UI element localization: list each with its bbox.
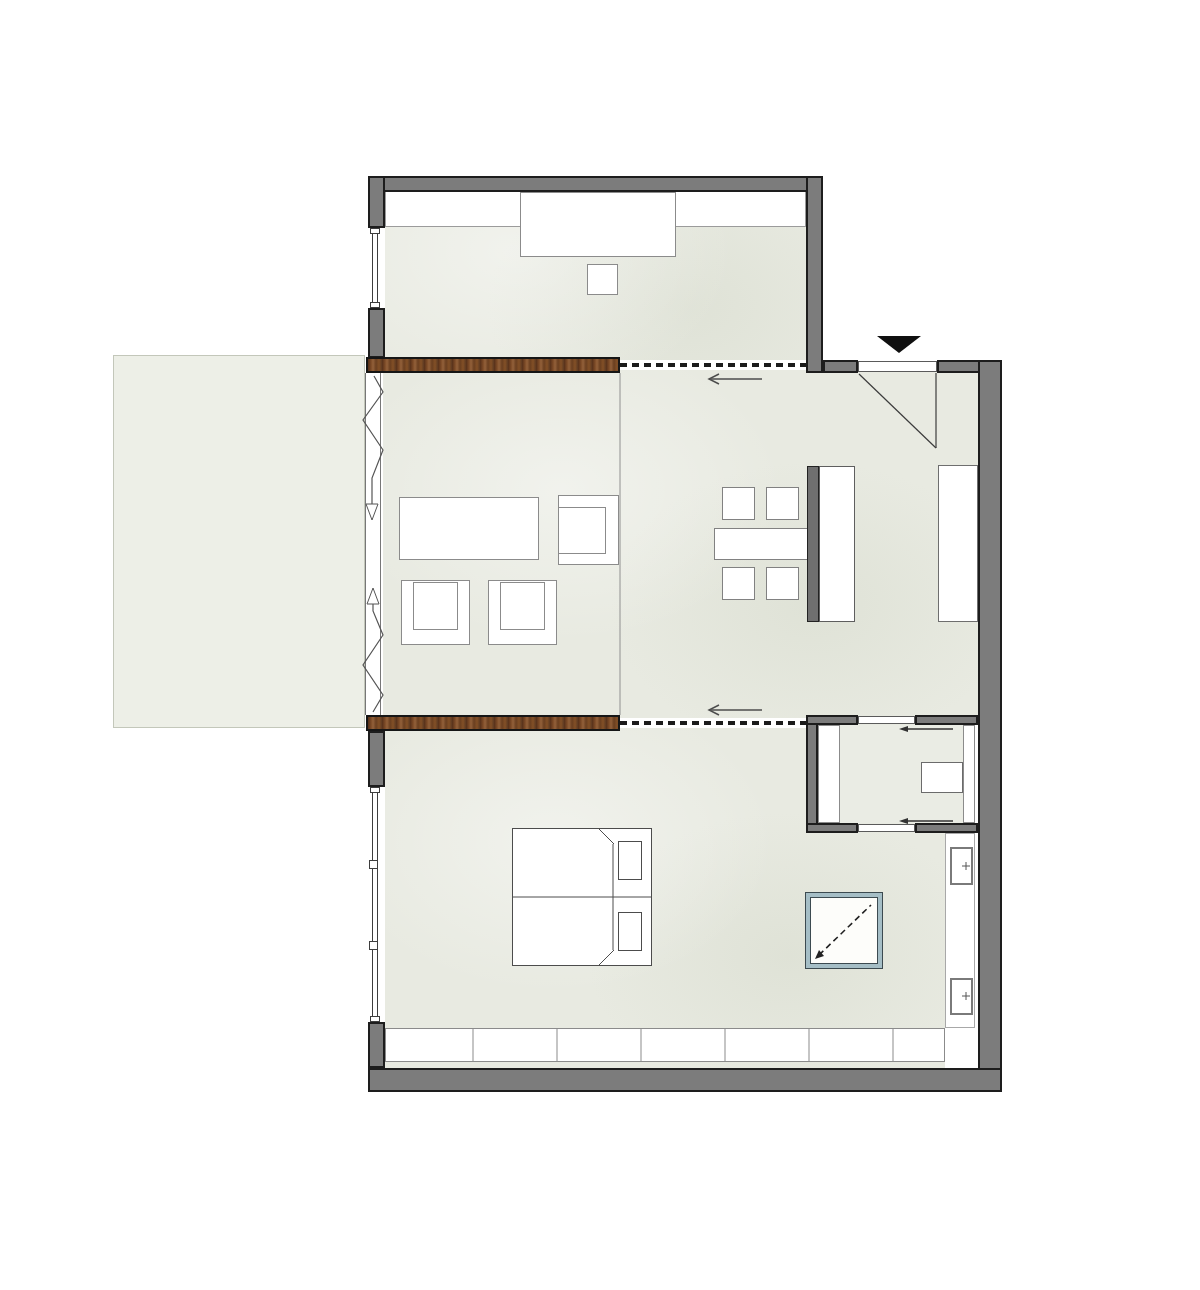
- window-bedroom-mullion-b: [369, 941, 378, 950]
- sliding-wood-door-lower: [366, 715, 620, 731]
- wall-top-room-right: [806, 176, 823, 373]
- bath-pocket-door-top: [858, 716, 915, 724]
- radiator-top: [950, 847, 973, 885]
- window-top-cap-a: [370, 228, 380, 234]
- fold-door-arrow-up: [367, 588, 379, 604]
- wall-bedroom-left-b: [368, 1022, 385, 1068]
- wall-left-upper-b: [368, 308, 385, 358]
- top-room-sideboard: [520, 192, 676, 257]
- wall-bath-left: [806, 715, 818, 833]
- bath-sink: [921, 762, 963, 793]
- wall-bath-bottom-right: [915, 823, 978, 833]
- track-band-lower: [618, 718, 810, 728]
- side-armchair-seat: [558, 507, 606, 554]
- top-room-stool: [587, 264, 618, 295]
- dining-chair-1: [722, 487, 755, 520]
- window-bedroom-glass: [372, 791, 378, 1018]
- window-top-cap-b: [370, 302, 380, 308]
- fold-door-zigzag-top: [363, 376, 383, 504]
- fold-door-zigzag-bottom: [363, 604, 383, 712]
- wall-left-upper-a: [368, 176, 385, 228]
- armchair-right-seat: [500, 582, 545, 630]
- sliding-wood-door-upper: [366, 357, 620, 373]
- wall-bath-top-left: [806, 715, 858, 725]
- window-bedroom-cap-b: [370, 1016, 380, 1022]
- dining-chair-2: [766, 487, 799, 520]
- bath-pocket-door-bottom: [858, 824, 915, 832]
- track-band-upper: [618, 360, 810, 370]
- pillow-top: [618, 841, 642, 880]
- wall-outer-bottom: [368, 1068, 1002, 1092]
- shower-skylight: [806, 893, 882, 968]
- pillow-bottom: [618, 912, 642, 951]
- entrance-marker-triangle: [877, 336, 921, 353]
- wall-bedroom-left-a: [368, 731, 385, 787]
- window-bedroom-cap-a: [370, 787, 380, 793]
- entrance-door-panel: [858, 361, 937, 372]
- built-in-wardrobe: [385, 1028, 945, 1062]
- wall-bath-bottom-left: [806, 823, 858, 833]
- radiator-bottom: [950, 978, 973, 1015]
- wall-outer-right: [978, 360, 1002, 1092]
- bath-cabinet-left: [818, 725, 840, 823]
- wall-bath-top-right: [915, 715, 978, 725]
- coffee-table: [399, 497, 539, 560]
- floor-plan: [0, 0, 1200, 1290]
- window-bedroom-mullion-a: [369, 860, 378, 869]
- kitchen-counter: [938, 465, 978, 622]
- island-back-panel: [807, 466, 819, 622]
- kitchen-island: [819, 466, 855, 622]
- wall-top: [368, 176, 823, 192]
- dining-table: [714, 528, 808, 560]
- dining-chair-3: [722, 567, 755, 600]
- window-top-glass: [372, 231, 378, 305]
- bath-counter-right: [963, 725, 975, 823]
- dining-chair-4: [766, 567, 799, 600]
- armchair-left-seat: [413, 582, 458, 630]
- wall-entry-top-left: [823, 360, 858, 373]
- fold-door-arrow-down: [366, 504, 378, 520]
- terrace-deck: [113, 355, 365, 728]
